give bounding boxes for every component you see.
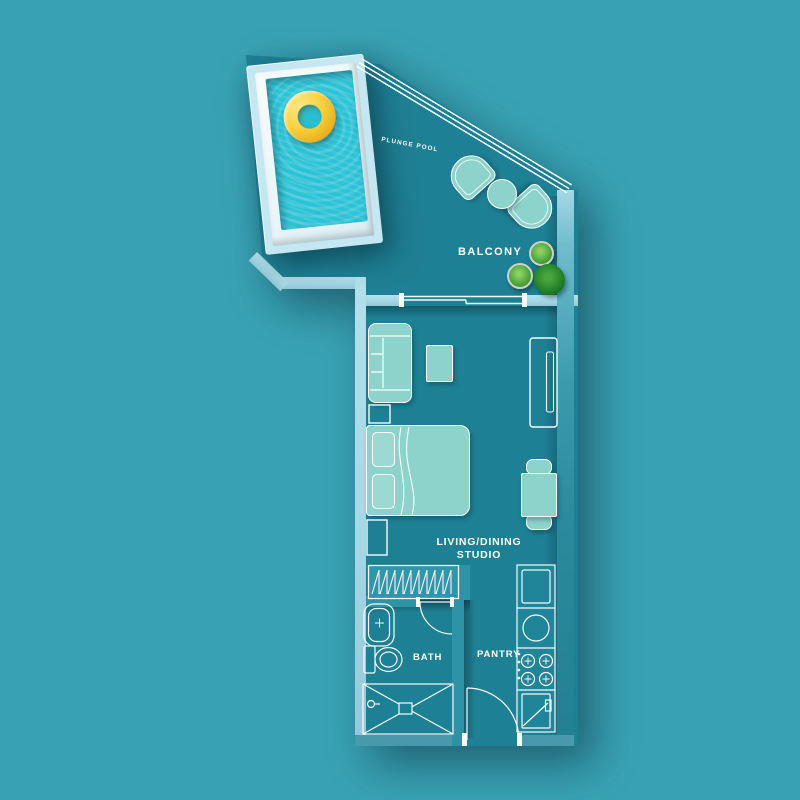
label-bath: BATH — [413, 652, 442, 663]
bath-sink — [364, 604, 394, 646]
linework-overlay — [0, 0, 800, 800]
kitchen-linework — [517, 565, 555, 732]
sliding-door — [399, 293, 527, 307]
nightstand — [369, 405, 390, 423]
entrance-door — [462, 688, 522, 746]
shower — [363, 684, 453, 734]
floor-plan — [0, 0, 800, 800]
label-pantry: PANTRY — [477, 649, 520, 660]
bed-blanket-fold — [399, 427, 414, 515]
sofa-cushion-lines — [370, 336, 410, 390]
floor-plan-canvas: PLUNGE POOL BALCONY LIVING/DINING STUDIO… — [0, 0, 800, 800]
toilet — [364, 646, 402, 673]
refrigerator — [522, 570, 550, 603]
kitchen-sink — [523, 615, 549, 641]
label-living-dining-line2: STUDIO — [413, 549, 545, 562]
closet — [530, 338, 557, 427]
label-living-dining-studio: LIVING/DINING STUDIO — [413, 536, 545, 562]
oven — [522, 694, 551, 728]
label-balcony: BALCONY — [458, 246, 522, 258]
dresser — [367, 520, 387, 555]
stove-burners — [518, 653, 553, 686]
bath-door — [416, 597, 454, 634]
wardrobe-hanger-lines — [369, 566, 459, 599]
label-living-dining-line1: LIVING/DINING — [413, 536, 545, 549]
